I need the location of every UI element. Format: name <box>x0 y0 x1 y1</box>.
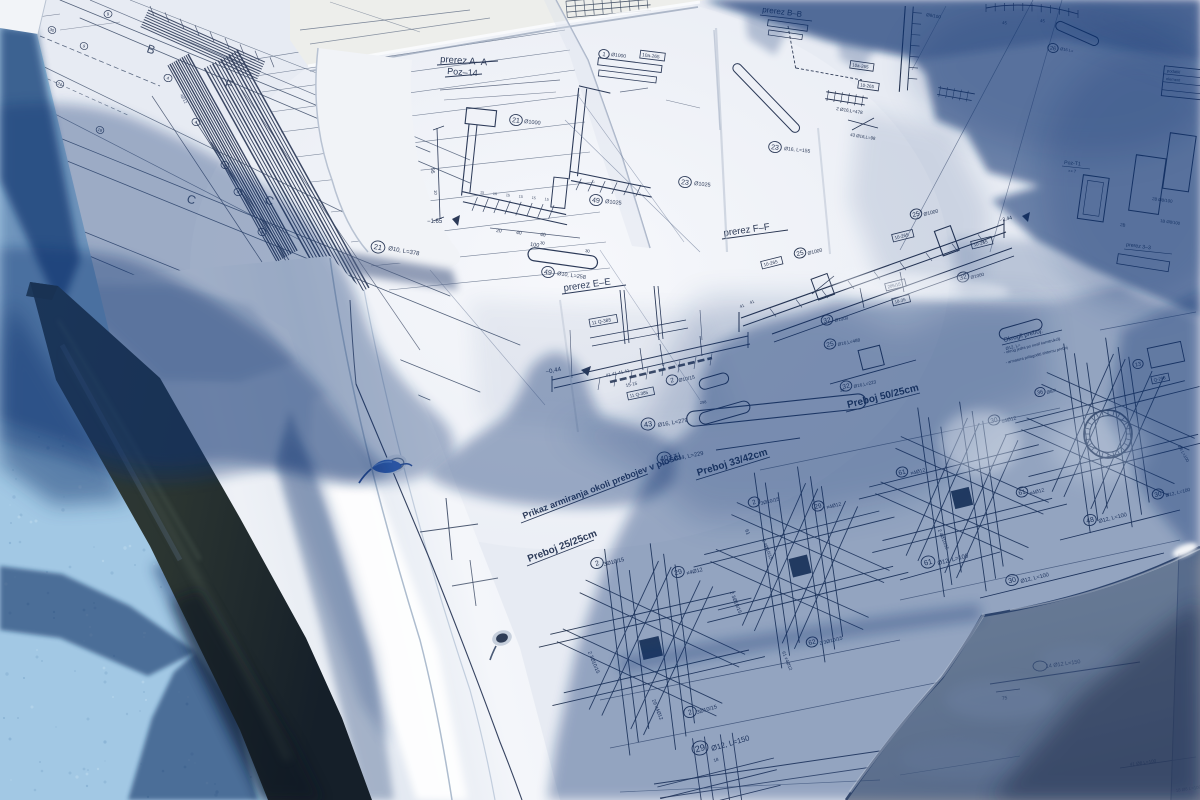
svg-text:15: 15 <box>480 190 485 194</box>
svg-text:10: 10 <box>433 190 438 196</box>
svg-text:23: 23 <box>771 144 780 152</box>
svg-text:−1.65: −1.65 <box>427 219 443 225</box>
svg-text:15: 15 <box>544 197 549 201</box>
svg-text:40: 40 <box>540 232 546 239</box>
svg-text:21: 21 <box>512 117 521 125</box>
svg-text:15: 15 <box>506 193 511 197</box>
svg-text:95: 95 <box>429 168 435 174</box>
svg-text:15: 15 <box>493 192 498 196</box>
svg-text:23: 23 <box>681 179 690 187</box>
svg-text:15: 15 <box>519 195 524 199</box>
svg-text:49: 49 <box>592 197 601 205</box>
svg-text:15: 15 <box>531 196 536 200</box>
svg-text:49: 49 <box>544 269 553 277</box>
svg-text:21: 21 <box>373 242 383 252</box>
